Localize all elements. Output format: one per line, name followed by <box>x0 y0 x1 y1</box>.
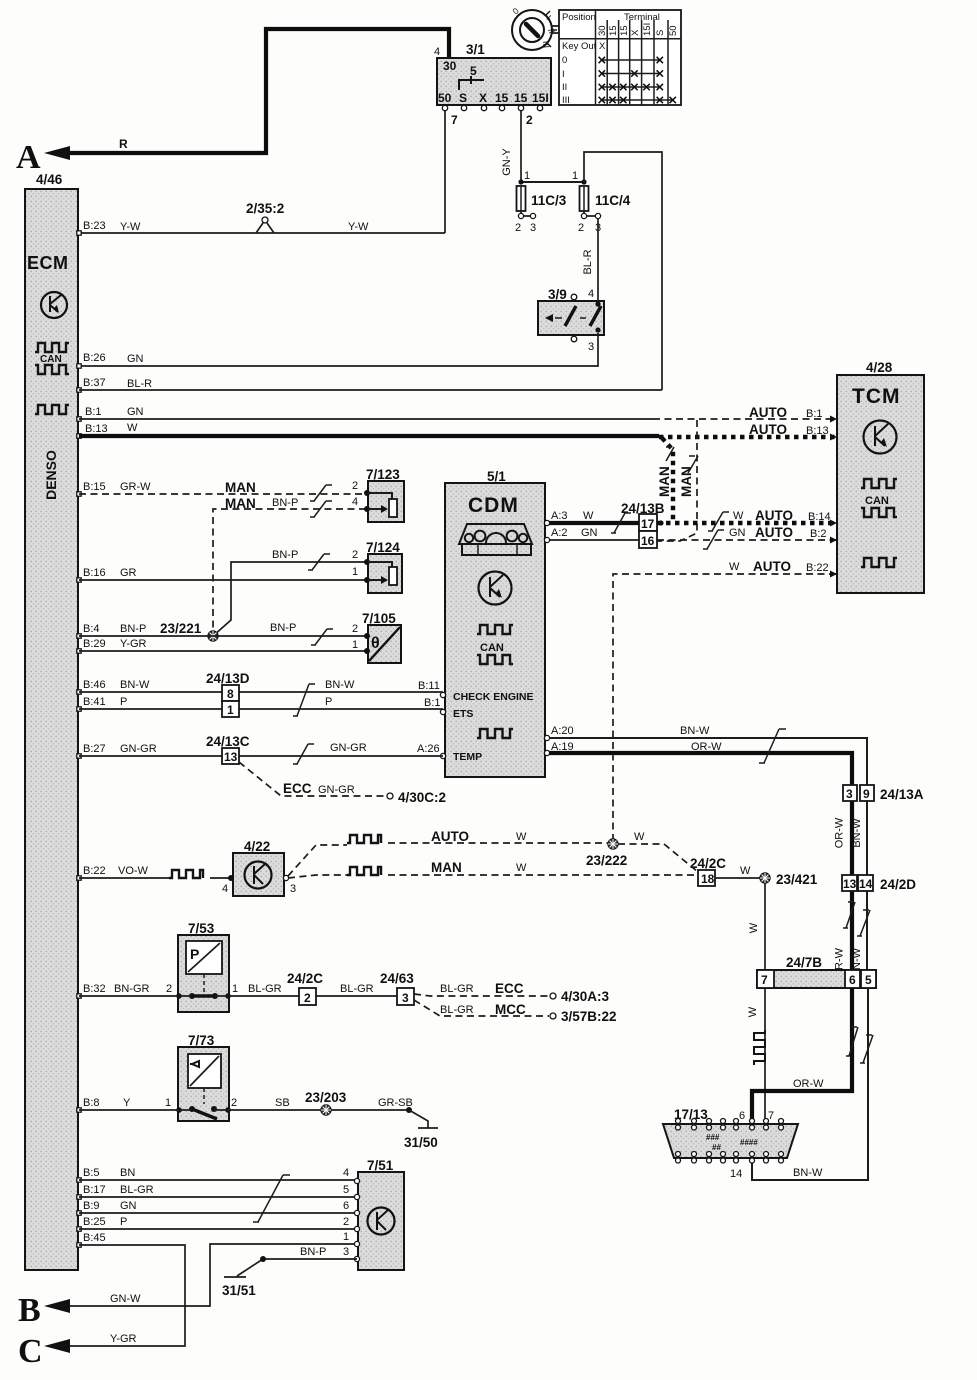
svg-text:B:29: B:29 <box>83 638 106 650</box>
svg-text:BN-W: BN-W <box>680 725 710 737</box>
svg-text:11C/3: 11C/3 <box>531 193 567 208</box>
svg-text:B:1: B:1 <box>424 697 441 709</box>
svg-text:GN: GN <box>581 527 598 539</box>
svg-text:BN-GR: BN-GR <box>114 983 150 995</box>
svg-text:3: 3 <box>588 341 594 353</box>
svg-text:P: P <box>190 946 199 962</box>
svg-text:OR-W: OR-W <box>793 1078 824 1090</box>
svg-text:P: P <box>120 696 127 708</box>
svg-text:4/28: 4/28 <box>866 360 893 375</box>
svg-text:5: 5 <box>470 64 477 78</box>
svg-text:Key Out: Key Out <box>562 41 597 52</box>
svg-text:BN-P: BN-P <box>300 1246 326 1258</box>
svg-text:5/1: 5/1 <box>487 469 506 484</box>
svg-text:GN-GR: GN-GR <box>330 742 367 754</box>
svg-text:####: #### <box>740 1138 758 1147</box>
svg-text:31/51: 31/51 <box>222 1283 256 1298</box>
svg-text:2: 2 <box>304 991 311 1005</box>
svg-text:P: P <box>120 1216 127 1228</box>
svg-text:50: 50 <box>438 91 452 105</box>
svg-text:BN-P: BN-P <box>272 549 298 561</box>
svg-text:GN: GN <box>729 527 746 539</box>
svg-text:B:32: B:32 <box>83 983 106 995</box>
svg-text:C: C <box>18 1333 43 1370</box>
svg-text:3/57B:22: 3/57B:22 <box>561 1009 617 1024</box>
svg-text:0: 0 <box>562 55 567 66</box>
svg-text:AUTO: AUTO <box>431 829 469 844</box>
svg-text:3: 3 <box>846 787 853 801</box>
svg-text:4/22: 4/22 <box>244 839 270 854</box>
svg-text:B:37: B:37 <box>83 377 106 389</box>
svg-text:W: W <box>583 510 594 522</box>
svg-text:18: 18 <box>701 872 715 886</box>
svg-text:BL-GR: BL-GR <box>340 983 374 995</box>
svg-text:4/30A:3: 4/30A:3 <box>561 989 610 1004</box>
svg-text:BN-W: BN-W <box>793 1167 823 1179</box>
svg-text:B:41: B:41 <box>83 696 106 708</box>
svg-text:S: S <box>655 30 666 36</box>
svg-text:AUTO: AUTO <box>755 508 793 523</box>
svg-text:W: W <box>747 1006 759 1017</box>
svg-text:X: X <box>479 91 487 105</box>
svg-text:3: 3 <box>343 1246 349 1258</box>
svg-text:B:15: B:15 <box>83 481 106 493</box>
svg-text:1: 1 <box>524 170 530 182</box>
svg-text:GR: GR <box>120 567 137 579</box>
svg-text:1: 1 <box>343 1231 349 1243</box>
svg-text:9: 9 <box>863 787 870 801</box>
svg-text:OR-W: OR-W <box>834 817 846 848</box>
svg-text:B:14: B:14 <box>808 511 831 523</box>
svg-text:W: W <box>748 922 760 933</box>
svg-text:A:19: A:19 <box>551 741 574 753</box>
svg-text:6: 6 <box>739 1110 745 1122</box>
svg-text:BL-GR: BL-GR <box>440 983 474 995</box>
svg-text:B:17: B:17 <box>83 1184 106 1196</box>
svg-text:B:1: B:1 <box>85 406 102 418</box>
svg-text:BN-W: BN-W <box>851 818 863 848</box>
svg-text:CAN: CAN <box>40 354 62 365</box>
svg-text:ECM: ECM <box>27 253 69 273</box>
svg-text:W: W <box>516 862 527 874</box>
svg-text:7/73: 7/73 <box>188 1033 215 1048</box>
svg-text:1: 1 <box>232 983 238 995</box>
svg-text:3: 3 <box>402 991 409 1005</box>
svg-text:B:16: B:16 <box>83 567 106 579</box>
svg-text:BL-GR: BL-GR <box>120 1184 154 1196</box>
svg-text:14: 14 <box>859 877 873 891</box>
svg-text:BL-GR: BL-GR <box>248 983 282 995</box>
svg-text:BN-P: BN-P <box>270 622 296 634</box>
svg-text:MCC: MCC <box>495 1002 526 1017</box>
svg-text:2: 2 <box>515 222 521 234</box>
svg-text:2: 2 <box>231 1097 237 1109</box>
svg-text:24/2D: 24/2D <box>880 877 916 892</box>
svg-text:CAN: CAN <box>480 642 504 654</box>
svg-text:23/221: 23/221 <box>160 621 202 636</box>
svg-text:MAN: MAN <box>225 480 256 495</box>
svg-text:B:1: B:1 <box>806 408 823 420</box>
svg-text:7/53: 7/53 <box>188 921 215 936</box>
svg-text:23/421: 23/421 <box>776 872 818 887</box>
svg-text:Y-GR: Y-GR <box>110 1333 137 1345</box>
svg-text:3/9: 3/9 <box>548 287 567 302</box>
svg-text:2: 2 <box>352 623 358 635</box>
svg-text:B:23: B:23 <box>83 220 106 232</box>
svg-text:III: III <box>541 40 552 48</box>
svg-text:A:3: A:3 <box>551 510 568 522</box>
svg-text:4/30C:2: 4/30C:2 <box>398 790 446 805</box>
svg-text:B:2: B:2 <box>810 528 827 540</box>
svg-text:GN-GR: GN-GR <box>120 743 157 755</box>
svg-text:CDM: CDM <box>468 494 519 517</box>
svg-text:7/124: 7/124 <box>366 540 400 555</box>
svg-text:16: 16 <box>641 534 655 548</box>
svg-text:1: 1 <box>165 1097 171 1109</box>
svg-text:1: 1 <box>227 703 234 717</box>
svg-text:P: P <box>325 696 332 708</box>
svg-text:4/46: 4/46 <box>36 172 63 187</box>
svg-text:A:26: A:26 <box>417 743 440 755</box>
svg-text:B:25: B:25 <box>83 1216 106 1228</box>
svg-text:BN-P: BN-P <box>272 497 298 509</box>
svg-text:15I: 15I <box>532 91 549 105</box>
svg-text:GN: GN <box>120 1200 137 1212</box>
svg-text:30: 30 <box>597 25 608 36</box>
svg-text:4: 4 <box>222 883 228 895</box>
svg-text:W: W <box>733 510 744 522</box>
svg-text:24/7B: 24/7B <box>786 955 822 970</box>
svg-text:GN-GR: GN-GR <box>318 784 355 796</box>
svg-text:15: 15 <box>608 25 619 36</box>
svg-text:ECC: ECC <box>283 781 312 796</box>
svg-text:I: I <box>562 69 565 80</box>
svg-text:ETS: ETS <box>453 708 473 720</box>
svg-text:B:9: B:9 <box>83 1200 100 1212</box>
svg-text:7: 7 <box>761 973 768 987</box>
svg-text:BN-W: BN-W <box>120 679 150 691</box>
svg-text:4: 4 <box>343 1167 349 1179</box>
svg-text:6: 6 <box>849 973 856 987</box>
svg-text:B:4: B:4 <box>83 623 100 635</box>
svg-text:Y-W: Y-W <box>120 221 141 233</box>
svg-text:11C/4: 11C/4 <box>595 193 631 208</box>
svg-text:B:45: B:45 <box>83 1232 106 1244</box>
svg-text:SB: SB <box>275 1097 290 1109</box>
svg-text:AUTO: AUTO <box>749 405 787 420</box>
svg-text:Y-GR: Y-GR <box>120 638 147 650</box>
svg-text:W: W <box>740 865 751 877</box>
svg-text:BN-W: BN-W <box>325 679 355 691</box>
svg-text:15: 15 <box>495 91 509 105</box>
svg-text:MAN: MAN <box>431 860 462 875</box>
svg-text:3: 3 <box>290 883 296 895</box>
svg-text:4: 4 <box>352 496 358 508</box>
svg-text:2: 2 <box>343 1216 349 1228</box>
svg-text:2: 2 <box>578 222 584 234</box>
svg-text:W: W <box>127 422 138 434</box>
svg-text:24/2C: 24/2C <box>287 971 323 986</box>
svg-text:II: II <box>562 82 567 93</box>
svg-text:TCM: TCM <box>852 385 901 408</box>
svg-text:2: 2 <box>166 983 172 995</box>
svg-text:30: 30 <box>443 59 457 73</box>
svg-text:5: 5 <box>865 973 872 987</box>
svg-text:B: B <box>18 1292 41 1329</box>
svg-text:3/1: 3/1 <box>466 42 485 57</box>
svg-text:7/105: 7/105 <box>362 611 396 626</box>
svg-text:4: 4 <box>588 288 594 300</box>
svg-text:W: W <box>729 561 740 573</box>
svg-text:AUTO: AUTO <box>755 525 793 540</box>
svg-text:TEMP: TEMP <box>453 751 482 763</box>
svg-text:14: 14 <box>730 1168 742 1180</box>
svg-text:B:27: B:27 <box>83 743 106 755</box>
svg-text:A:2: A:2 <box>551 527 568 539</box>
svg-text:50: 50 <box>668 25 679 36</box>
svg-text:A:20: A:20 <box>551 725 574 737</box>
svg-text:III: III <box>562 95 570 106</box>
svg-text:24/2C: 24/2C <box>690 856 726 871</box>
svg-text:Y: Y <box>123 1097 131 1109</box>
svg-text:24/13C: 24/13C <box>206 734 250 749</box>
svg-text:B:5: B:5 <box>83 1167 100 1179</box>
svg-text:CHECK ENGINE: CHECK ENGINE <box>453 691 534 703</box>
svg-text:θ: θ <box>371 635 380 652</box>
svg-text:AUTO: AUTO <box>753 559 791 574</box>
svg-text:GN: GN <box>127 406 144 418</box>
svg-text:ECC: ECC <box>495 981 524 996</box>
svg-text:2/35:2: 2/35:2 <box>246 201 284 216</box>
svg-text:BL-R: BL-R <box>582 249 594 274</box>
svg-text:B:22: B:22 <box>83 865 106 877</box>
svg-text:1: 1 <box>572 170 578 182</box>
svg-text:AUTO: AUTO <box>749 422 787 437</box>
svg-text:7/123: 7/123 <box>366 467 400 482</box>
svg-text:B:8: B:8 <box>83 1097 100 1109</box>
svg-text:4: 4 <box>434 46 440 58</box>
svg-text:MAN: MAN <box>225 496 256 511</box>
svg-text:31/50: 31/50 <box>404 1135 438 1150</box>
svg-text:Y-W: Y-W <box>348 221 369 233</box>
svg-text:17: 17 <box>641 517 655 531</box>
svg-text:GN-Y: GN-Y <box>501 148 513 176</box>
svg-text:S: S <box>459 91 467 105</box>
svg-text:24/63: 24/63 <box>380 971 414 986</box>
svg-text:GR-W: GR-W <box>120 481 151 493</box>
svg-text:5: 5 <box>343 1184 349 1196</box>
svg-text:B:22: B:22 <box>806 562 829 574</box>
svg-text:Position: Position <box>562 12 596 23</box>
svg-text:1: 1 <box>352 639 358 651</box>
svg-text:VO-W: VO-W <box>118 865 149 877</box>
svg-text:GN-W: GN-W <box>110 1293 141 1305</box>
svg-text:W: W <box>516 831 527 843</box>
svg-text:24/13A: 24/13A <box>880 787 924 802</box>
svg-text:7: 7 <box>451 113 458 127</box>
svg-text:BN: BN <box>120 1167 135 1179</box>
svg-text:B:26: B:26 <box>83 352 106 364</box>
svg-text:B:13: B:13 <box>85 423 108 435</box>
svg-text:2: 2 <box>352 480 358 492</box>
svg-text:OR-W: OR-W <box>691 741 722 753</box>
svg-text:###: ### <box>706 1133 720 1142</box>
svg-text:A: A <box>16 139 41 176</box>
svg-text:GN: GN <box>127 353 144 365</box>
svg-text:X: X <box>599 41 606 52</box>
svg-text:Terminal: Terminal <box>624 12 660 23</box>
svg-text:2: 2 <box>526 113 533 127</box>
svg-text:13: 13 <box>224 750 238 764</box>
svg-text:13: 13 <box>843 877 857 891</box>
svg-text:B:46: B:46 <box>83 679 106 691</box>
svg-text:6: 6 <box>343 1200 349 1212</box>
svg-text:BL-R: BL-R <box>127 378 152 390</box>
svg-text:R: R <box>119 137 128 151</box>
svg-text:BN-P: BN-P <box>120 623 146 635</box>
svg-text:24/13D: 24/13D <box>206 671 250 686</box>
svg-text:8: 8 <box>227 687 234 701</box>
svg-text:7/51: 7/51 <box>367 1158 394 1173</box>
svg-text:X: X <box>630 29 641 36</box>
svg-text:15: 15 <box>619 25 630 36</box>
svg-text:15: 15 <box>514 91 528 105</box>
svg-text:W: W <box>634 831 645 843</box>
svg-text:GR-SB: GR-SB <box>378 1097 413 1109</box>
svg-text:B:11: B:11 <box>418 680 440 692</box>
svg-text:MAN: MAN <box>679 466 694 497</box>
svg-text:1: 1 <box>352 566 358 578</box>
svg-text:CAN: CAN <box>865 495 889 507</box>
svg-text:DENSO: DENSO <box>43 450 59 500</box>
svg-text:MAN: MAN <box>657 466 672 497</box>
svg-text:3: 3 <box>530 222 536 234</box>
svg-text:##: ## <box>712 1143 721 1152</box>
svg-text:23/203: 23/203 <box>305 1090 347 1105</box>
svg-text:23/222: 23/222 <box>586 853 627 868</box>
svg-text:B:13: B:13 <box>806 425 829 437</box>
svg-text:15I: 15I <box>642 23 653 36</box>
svg-text:BL-GR: BL-GR <box>440 1004 474 1016</box>
svg-text:2: 2 <box>352 549 358 561</box>
